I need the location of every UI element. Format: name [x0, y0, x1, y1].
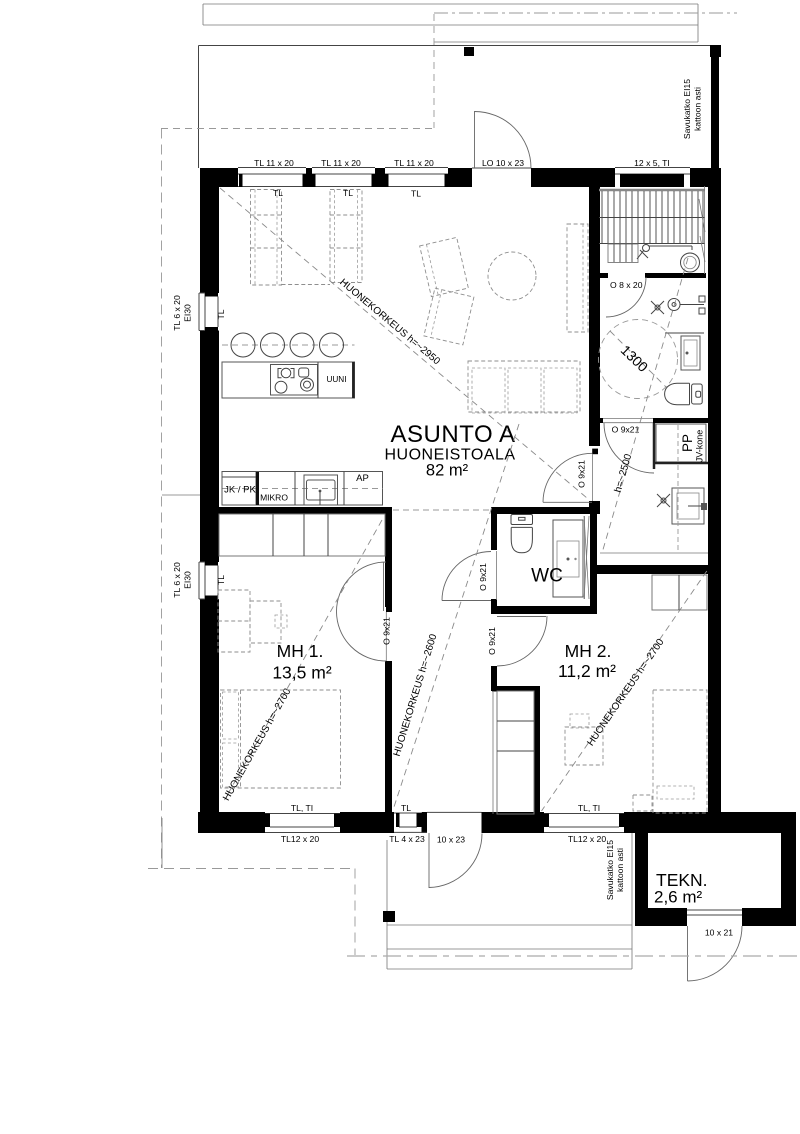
svg-text:13,5 m²: 13,5 m² [272, 663, 331, 683]
svg-text:TL: TL [273, 188, 283, 198]
svg-text:O 8 x 20: O 8 x 20 [610, 280, 643, 290]
svg-text:O 9x21: O 9x21 [612, 425, 640, 435]
svg-text:AP: AP [356, 473, 369, 484]
svg-text:MIKRO: MIKRO [260, 493, 288, 503]
svg-text:PP: PP [680, 434, 695, 452]
svg-text:TL, TI: TL, TI [578, 803, 600, 813]
svg-text:12 x 5, TI: 12 x 5, TI [634, 158, 670, 168]
svg-text:ASUNTO A: ASUNTO A [391, 421, 516, 448]
svg-text:TL 11 x 20: TL 11 x 20 [254, 158, 294, 168]
svg-text:82 m²: 82 m² [426, 462, 469, 480]
svg-text:EI30: EI30 [183, 304, 193, 322]
svg-text:2,6 m²: 2,6 m² [654, 888, 703, 907]
svg-text:kattoon asti: kattoon asti [615, 848, 625, 892]
svg-text:TL: TL [411, 189, 421, 199]
svg-text:MH 2.: MH 2. [565, 641, 612, 661]
svg-text:TL 11 x 20: TL 11 x 20 [321, 158, 361, 168]
svg-text:TL12 x 20: TL12 x 20 [281, 834, 319, 844]
svg-text:JK / PK: JK / PK [224, 485, 256, 496]
svg-text:11,2 m²: 11,2 m² [558, 661, 616, 681]
svg-text:10 x 23: 10 x 23 [437, 835, 465, 845]
svg-text:TL 4 x 23: TL 4 x 23 [389, 834, 425, 844]
svg-text:JV-kone: JV-kone [695, 430, 705, 463]
svg-text:O 9x21: O 9x21 [382, 617, 392, 645]
svg-text:TL, TI: TL, TI [291, 803, 313, 813]
svg-text:TL: TL [216, 575, 226, 585]
svg-text:TL: TL [216, 309, 226, 319]
svg-text:Savukatko EI15: Savukatko EI15 [682, 79, 692, 139]
svg-text:EI30: EI30 [183, 571, 193, 589]
svg-text:TL: TL [401, 803, 411, 813]
svg-text:TL12 x 20: TL12 x 20 [568, 834, 606, 844]
svg-text:Savukatko EI15: Savukatko EI15 [605, 840, 615, 900]
svg-text:MH 1.: MH 1. [277, 641, 324, 661]
svg-text:kattoon asti: kattoon asti [693, 87, 703, 131]
svg-text:TL 6 x 20: TL 6 x 20 [172, 295, 182, 331]
svg-text:10 x 21: 10 x 21 [705, 928, 733, 938]
svg-text:TL: TL [343, 188, 353, 198]
svg-text:WC: WC [531, 566, 563, 587]
svg-text:LO 10 x 23: LO 10 x 23 [482, 158, 524, 168]
svg-text:TL 6 x 20: TL 6 x 20 [172, 562, 182, 598]
svg-text:UUNI: UUNI [326, 375, 346, 384]
svg-text:TL 11 x 20: TL 11 x 20 [394, 158, 434, 168]
svg-text:O 9x21: O 9x21 [577, 460, 587, 488]
svg-text:O 9x21: O 9x21 [478, 563, 488, 591]
svg-text:O 9x21: O 9x21 [487, 627, 497, 655]
